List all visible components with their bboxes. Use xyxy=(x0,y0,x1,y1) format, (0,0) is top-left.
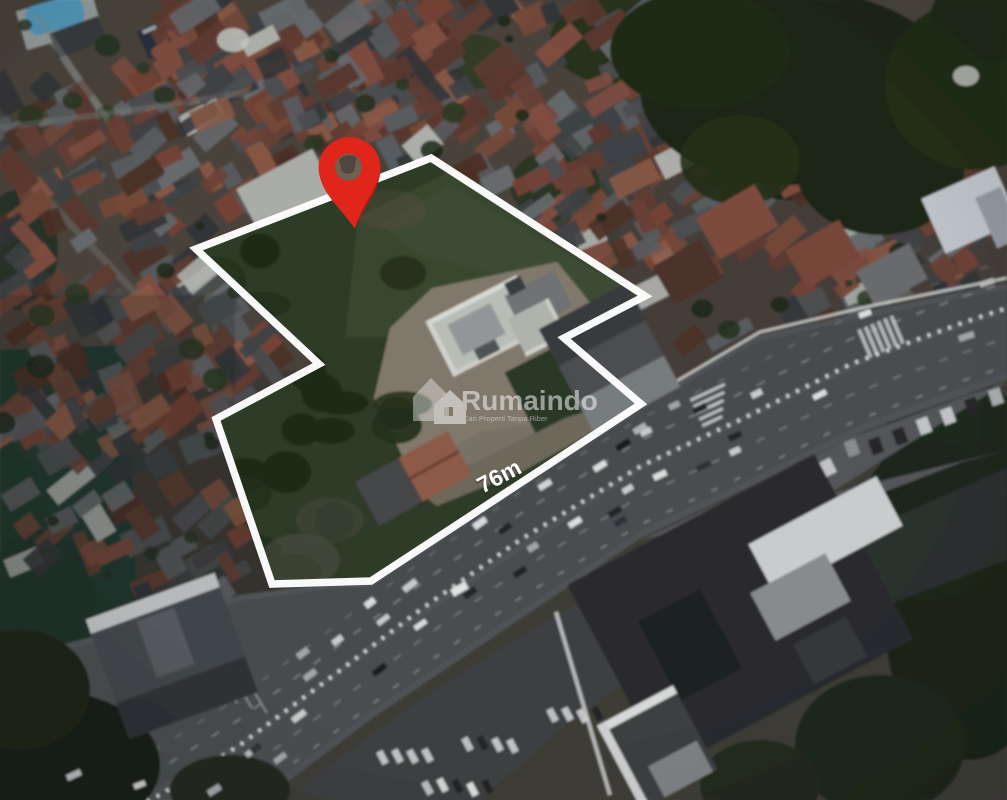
svg-text:Cari Properti Tanpa Riber: Cari Properti Tanpa Riber xyxy=(463,414,548,423)
svg-text:Rumaindo: Rumaindo xyxy=(461,385,598,416)
